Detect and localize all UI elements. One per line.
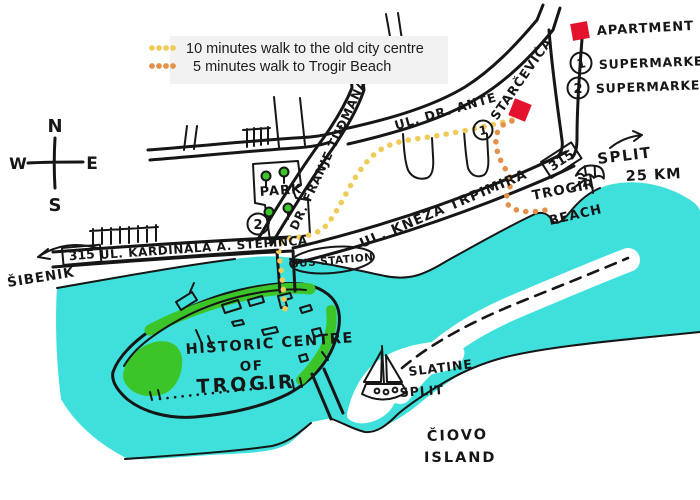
supermarket-2-key-label: SUPERMARKET: [596, 77, 700, 96]
map-key: APARTMENT 1 SUPERMARKET 2 SUPERMARKET: [568, 19, 700, 99]
supermarket-1-key: 1 SUPERMARKET: [571, 53, 700, 74]
compass-n: N: [47, 116, 62, 137]
compass-e: E: [86, 154, 98, 174]
svg-text:2: 2: [573, 82, 582, 97]
compass-s: S: [49, 195, 62, 216]
map-canvas: BUS STATION 315 315 1 2 N S W E: [0, 0, 700, 500]
svg-text:2: 2: [253, 218, 262, 233]
svg-text:ČIOVO: ČIOVO: [427, 425, 489, 445]
split-distance-label: 25 KM: [625, 166, 682, 185]
park-label: PARK: [259, 182, 302, 200]
route-city-swatch: [149, 45, 176, 51]
apartment-key-swatch: [570, 21, 590, 41]
svg-text:ISLAND: ISLAND: [424, 450, 496, 466]
apartment-key-label: APARTMENT: [596, 19, 694, 39]
svg-text:315: 315: [68, 246, 95, 263]
trogir-hand-drawn-map: BUS STATION 315 315 1 2 N S W E: [0, 0, 700, 500]
compass-rose: N S W E: [9, 116, 98, 216]
compass-w: W: [9, 154, 27, 173]
route-beach-swatch: [149, 63, 176, 69]
svg-text:1: 1: [575, 56, 587, 73]
svg-text:1: 1: [478, 123, 489, 138]
legend-box: 10 minutes walk to the old city centre 5…: [149, 36, 448, 84]
slatine-split-label: SPLIT: [399, 382, 444, 400]
supermarket-2-key: 2 SUPERMARKET: [568, 77, 700, 98]
legend-walk-city: 10 minutes walk to the old city centre: [186, 41, 424, 57]
ciovo-island-label: ČIOVO ISLAND: [424, 425, 496, 466]
supermarket-1-key-label: SUPERMARKET: [599, 53, 700, 72]
split-label: SPLIT: [596, 143, 652, 168]
legend-walk-beach: 5 minutes walk to Trogir Beach: [193, 59, 391, 75]
